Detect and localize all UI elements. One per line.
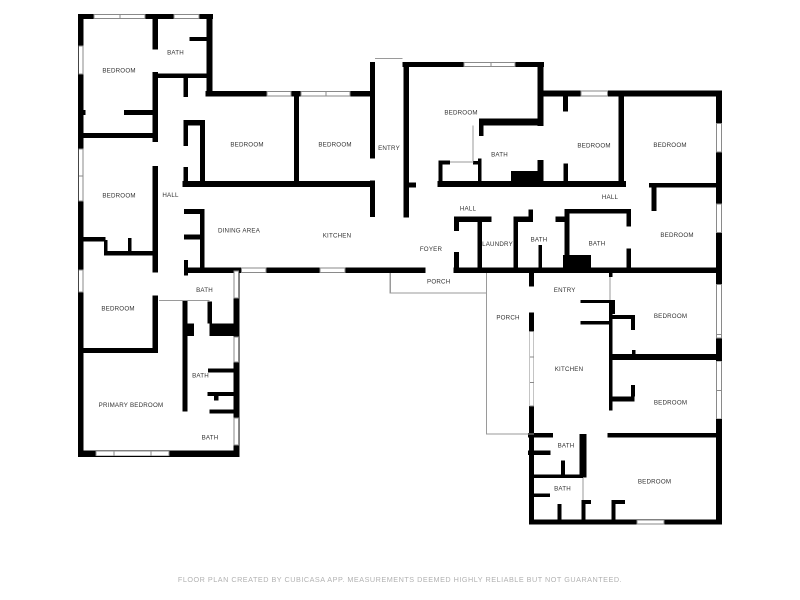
svg-text:FOYER: FOYER: [420, 246, 443, 253]
svg-text:PORCH: PORCH: [427, 279, 450, 286]
svg-text:BEDROOM: BEDROOM: [102, 67, 135, 74]
svg-text:BEDROOM: BEDROOM: [444, 109, 477, 116]
svg-text:DINING AREA: DINING AREA: [218, 227, 261, 234]
svg-text:BEDROOM: BEDROOM: [653, 142, 686, 149]
svg-text:BEDROOM: BEDROOM: [230, 141, 263, 148]
svg-text:HALL: HALL: [460, 205, 477, 212]
svg-text:BEDROOM: BEDROOM: [577, 142, 610, 149]
svg-text:ENTRY: ENTRY: [554, 287, 576, 294]
svg-text:BATH: BATH: [491, 151, 508, 158]
svg-text:ENTRY: ENTRY: [378, 145, 400, 152]
svg-text:PRIMARY BEDROOM: PRIMARY BEDROOM: [99, 402, 164, 409]
svg-text:BATH: BATH: [554, 485, 571, 492]
svg-text:BATH: BATH: [192, 372, 209, 379]
svg-text:BEDROOM: BEDROOM: [660, 232, 693, 239]
svg-text:PORCH: PORCH: [496, 314, 519, 321]
svg-text:BATH: BATH: [589, 241, 606, 248]
svg-text:BEDROOM: BEDROOM: [101, 305, 134, 312]
svg-text:BATH: BATH: [202, 434, 219, 441]
svg-text:BEDROOM: BEDROOM: [654, 313, 687, 320]
svg-text:HALL: HALL: [162, 192, 179, 199]
svg-text:BEDROOM: BEDROOM: [654, 399, 687, 406]
svg-text:BEDROOM: BEDROOM: [638, 478, 671, 485]
svg-text:KITCHEN: KITCHEN: [555, 366, 584, 373]
svg-text:FLOOR PLAN CREATED BY CUBICASA: FLOOR PLAN CREATED BY CUBICASA APP. MEAS…: [178, 575, 622, 584]
svg-text:BEDROOM: BEDROOM: [102, 192, 135, 199]
svg-text:LAUNDRY: LAUNDRY: [482, 241, 513, 248]
svg-text:KITCHEN: KITCHEN: [323, 232, 352, 239]
svg-text:HALL: HALL: [602, 194, 619, 201]
svg-text:BATH: BATH: [558, 443, 575, 450]
svg-text:BATH: BATH: [167, 49, 184, 56]
svg-text:BATH: BATH: [196, 287, 213, 294]
svg-text:BATH: BATH: [531, 237, 548, 244]
svg-text:BEDROOM: BEDROOM: [318, 141, 351, 148]
